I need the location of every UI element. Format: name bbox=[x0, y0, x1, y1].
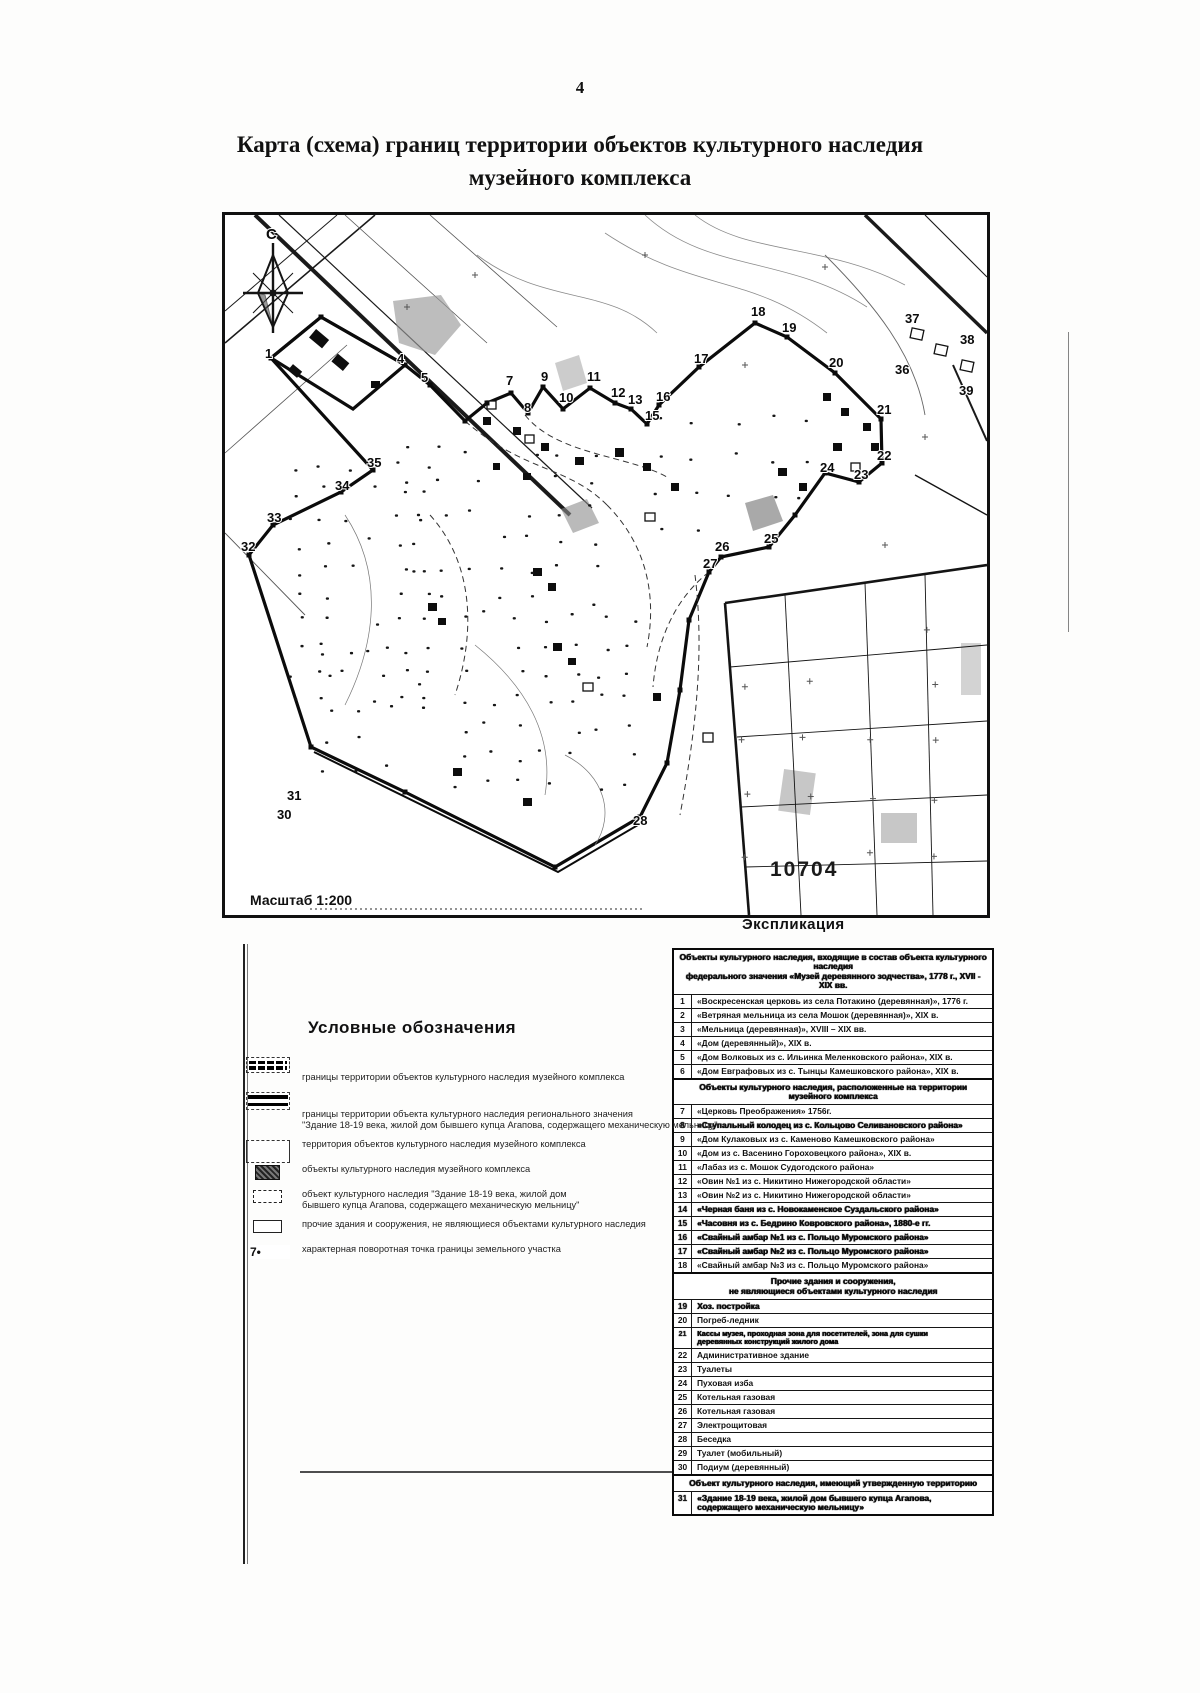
table-row: 23Туалеты bbox=[674, 1362, 992, 1376]
row-text: «Дом (деревянный)», XIX в. bbox=[692, 1037, 992, 1050]
legend-symbol-dashed-small-box bbox=[253, 1190, 282, 1203]
row-text: Кассы музея, проходная зона для посетите… bbox=[692, 1328, 992, 1347]
legend-item: территория объектов культурного наследия… bbox=[246, 1139, 766, 1157]
legend-item-text: границы территории объекта культурного н… bbox=[302, 1109, 772, 1132]
table-row: 3«Мельница (деревянная)», XVIII – XIX вв… bbox=[674, 1022, 992, 1036]
row-text: Котельная газовая bbox=[692, 1391, 992, 1404]
map-point-25: 25 bbox=[764, 531, 778, 546]
map-point-31: 31 bbox=[287, 788, 301, 803]
compass-north-label: С bbox=[266, 226, 277, 243]
row-text: Котельная газовая bbox=[692, 1405, 992, 1418]
row-number: 19 bbox=[674, 1300, 692, 1313]
map-point-11: 11 bbox=[587, 369, 601, 384]
scan-streak bbox=[1068, 332, 1069, 632]
map-point-32: 32 bbox=[241, 539, 255, 554]
legend-item: 7•характерная поворотная точка границы з… bbox=[246, 1244, 766, 1262]
table-row: 21Кассы музея, проходная зона для посети… bbox=[674, 1327, 992, 1347]
map-point-39: 39 bbox=[959, 383, 973, 398]
legend-item-text: территория объектов культурного наследия… bbox=[302, 1139, 772, 1151]
building-symbols bbox=[428, 393, 879, 806]
row-text: «Воскресенская церковь из села Потакино … bbox=[692, 995, 992, 1008]
legend-item: объекты культурного наследия музейного к… bbox=[246, 1164, 766, 1182]
row-number: 24 bbox=[674, 1377, 692, 1390]
legend-symbol-hatched-box bbox=[255, 1165, 280, 1180]
map-point-23: 23 bbox=[854, 467, 868, 482]
map-point-8: 8 bbox=[524, 400, 531, 415]
table-row: 27Электрощитовая bbox=[674, 1418, 992, 1432]
map-point-13: 13 bbox=[628, 392, 642, 407]
row-number: 31 bbox=[674, 1492, 692, 1514]
row-number: 27 bbox=[674, 1419, 692, 1432]
row-number: 20 bbox=[674, 1314, 692, 1327]
map-point-20: 20 bbox=[829, 355, 843, 370]
legend-symbol-dashed-box bbox=[246, 1057, 290, 1073]
table-section-header: Объекты культурного наследия, входящие в… bbox=[674, 950, 992, 994]
row-number: 1 bbox=[674, 995, 692, 1008]
row-text: «Ветряная мельница из села Мошок (деревя… bbox=[692, 1009, 992, 1022]
table-row: 4«Дом (деревянный)», XIX в. bbox=[674, 1036, 992, 1050]
parcel-number: 10704 bbox=[770, 858, 838, 882]
scanned-document-page: 4 Карта (схема) границ территории объект… bbox=[0, 0, 1200, 1693]
table-section-header: Прочие здания и сооружения, не являющиес… bbox=[674, 1272, 992, 1299]
legend-symbol-open-box bbox=[246, 1140, 290, 1163]
row-text: Погреб-ледник bbox=[692, 1314, 992, 1327]
row-text: Туалет (мобильный) bbox=[692, 1447, 992, 1460]
scan-streak bbox=[300, 1471, 672, 1473]
legend-item: объект культурного наследия "Здание 18-1… bbox=[246, 1189, 766, 1212]
table-row: 26Котельная газовая bbox=[674, 1404, 992, 1418]
explication-title: Экспликация bbox=[742, 916, 845, 933]
map-point-18: 18 bbox=[751, 304, 765, 319]
legend-item-text: прочие здания и сооружения, не являющиес… bbox=[302, 1219, 772, 1231]
legend-item: прочие здания и сооружения, не являющиес… bbox=[246, 1219, 766, 1237]
row-number: 21 bbox=[674, 1328, 692, 1347]
legend-item-text: объекты культурного наследия музейного к… bbox=[302, 1164, 772, 1176]
row-number: 26 bbox=[674, 1405, 692, 1418]
row-number: 30 bbox=[674, 1461, 692, 1474]
table-section-header: Объект культурного наследия, имеющий утв… bbox=[674, 1474, 992, 1491]
legend-symbol-open-small-box bbox=[253, 1220, 282, 1233]
row-number: 2 bbox=[674, 1009, 692, 1022]
map-point-34: 34 bbox=[335, 478, 350, 493]
row-text: Пуховая изба bbox=[692, 1377, 992, 1390]
map-point-26: 26 bbox=[715, 539, 729, 554]
table-row: 22Административное здание bbox=[674, 1348, 992, 1362]
map-scheme: С 14578910111213151617181920212223242526… bbox=[222, 212, 990, 918]
table-row: 20Погреб-ледник bbox=[674, 1313, 992, 1327]
table-row: 30Подиум (деревянный) bbox=[674, 1460, 992, 1474]
row-number: 4 bbox=[674, 1037, 692, 1050]
map-drawing: С 14578910111213151617181920212223242526… bbox=[225, 215, 987, 915]
page-number: 4 bbox=[0, 78, 1160, 98]
map-point-4: 4 bbox=[397, 351, 405, 366]
map-point-21: 21 bbox=[877, 402, 891, 417]
map-point-38: 38 bbox=[960, 332, 974, 347]
map-point-19: 19 bbox=[782, 320, 796, 335]
row-text: Туалеты bbox=[692, 1363, 992, 1376]
map-point-numbers: 1457891011121315161718192021222324252627… bbox=[241, 304, 974, 828]
table-row: 19Хоз. постройка bbox=[674, 1299, 992, 1313]
map-point-15: 15 bbox=[645, 408, 659, 423]
row-number: 23 bbox=[674, 1363, 692, 1376]
map-point-5: 5 bbox=[421, 370, 428, 385]
legend: границы территории объектов культурного … bbox=[246, 1056, 766, 1269]
row-number: 28 bbox=[674, 1433, 692, 1446]
map-point-27: 27 bbox=[703, 556, 717, 571]
legend-symbol-point: 7• bbox=[250, 1245, 290, 1259]
row-number: 3 bbox=[674, 1023, 692, 1036]
table-row: 25Котельная газовая bbox=[674, 1390, 992, 1404]
legend-symbol-double-line-box bbox=[246, 1092, 290, 1110]
table-row: 2«Ветряная мельница из села Мошок (дерев… bbox=[674, 1008, 992, 1022]
map-scale-label: Масштаб 1:200 bbox=[250, 892, 352, 908]
row-text: «Мельница (деревянная)», XVIII – XIX вв. bbox=[692, 1023, 992, 1036]
row-text: Административное здание bbox=[692, 1349, 992, 1362]
legend-item-text: характерная поворотная точка границы зем… bbox=[302, 1244, 772, 1256]
scan-fold-line bbox=[243, 944, 245, 1564]
row-text: Электрощитовая bbox=[692, 1419, 992, 1432]
row-number: 25 bbox=[674, 1391, 692, 1404]
scan-fold-line bbox=[247, 944, 248, 1564]
table-row: 28Беседка bbox=[674, 1432, 992, 1446]
row-number: 22 bbox=[674, 1349, 692, 1362]
table-row: 24Пуховая изба bbox=[674, 1376, 992, 1390]
map-point-24: 24 bbox=[820, 460, 835, 475]
legend-item: границы территории объектов культурного … bbox=[246, 1056, 766, 1084]
map-point-22: 22 bbox=[877, 448, 891, 463]
map-point-33: 33 bbox=[267, 510, 281, 525]
map-point-7: 7 bbox=[506, 373, 513, 388]
table-row: 29Туалет (мобильный) bbox=[674, 1446, 992, 1460]
row-text: «Здание 18-19 века, жилой дом бывшего ку… bbox=[692, 1492, 992, 1514]
legend-item-text: границы территории объектов культурного … bbox=[302, 1072, 772, 1084]
map-point-30: 30 bbox=[277, 807, 291, 822]
row-text: Хоз. постройка bbox=[692, 1300, 992, 1313]
legend-item-text: объект культурного наследия "Здание 18-1… bbox=[302, 1189, 772, 1212]
legend-item: границы территории объекта культурного н… bbox=[246, 1091, 766, 1132]
map-point-1: 1 bbox=[265, 346, 272, 361]
table-row: 31«Здание 18-19 века, жилой дом бывшего … bbox=[674, 1491, 992, 1514]
row-number: 29 bbox=[674, 1447, 692, 1460]
row-text: Подиум (деревянный) bbox=[692, 1461, 992, 1474]
map-point-12: 12 bbox=[611, 385, 625, 400]
map-point-10: 10 bbox=[559, 390, 573, 405]
map-point-35: 35 bbox=[367, 455, 381, 470]
map-point-36: 36 bbox=[895, 362, 909, 377]
row-text: Беседка bbox=[692, 1433, 992, 1446]
map-point-28: 28 bbox=[633, 813, 647, 828]
page-title: Карта (схема) границ территории объектов… bbox=[90, 128, 1070, 195]
map-point-16: 16 bbox=[656, 389, 670, 404]
table-row: 1«Воскресенская церковь из села Потакино… bbox=[674, 994, 992, 1008]
map-point-37: 37 bbox=[905, 311, 919, 326]
map-point-9: 9 bbox=[541, 369, 548, 384]
map-point-17: 17 bbox=[694, 351, 708, 366]
legend-title: Условные обозначения bbox=[308, 1018, 516, 1038]
